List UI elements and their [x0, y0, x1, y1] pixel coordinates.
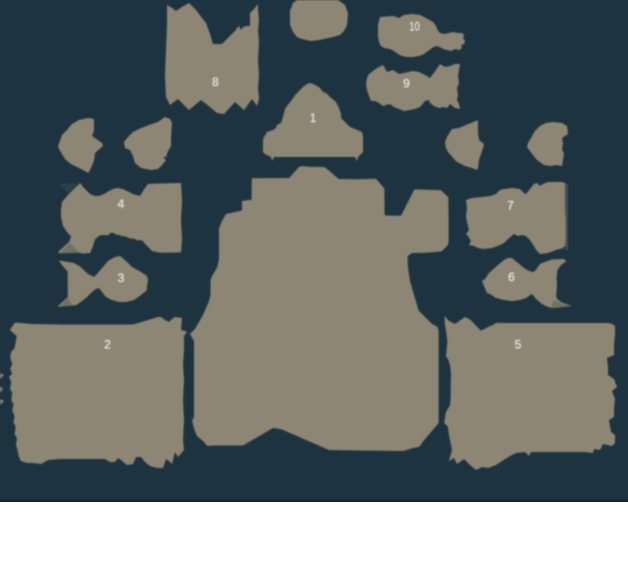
svg-text:10: 10 [409, 20, 420, 34]
svg-text:4: 4 [118, 197, 125, 211]
svg-text:8: 8 [212, 75, 219, 89]
svg-text:6: 6 [508, 270, 515, 284]
svg-text:3: 3 [118, 271, 125, 285]
svg-text:1: 1 [310, 111, 317, 125]
svg-text:7: 7 [507, 199, 514, 213]
svg-text:9: 9 [403, 77, 410, 91]
svg-text:2: 2 [104, 338, 111, 352]
svg-text:5: 5 [515, 338, 522, 352]
